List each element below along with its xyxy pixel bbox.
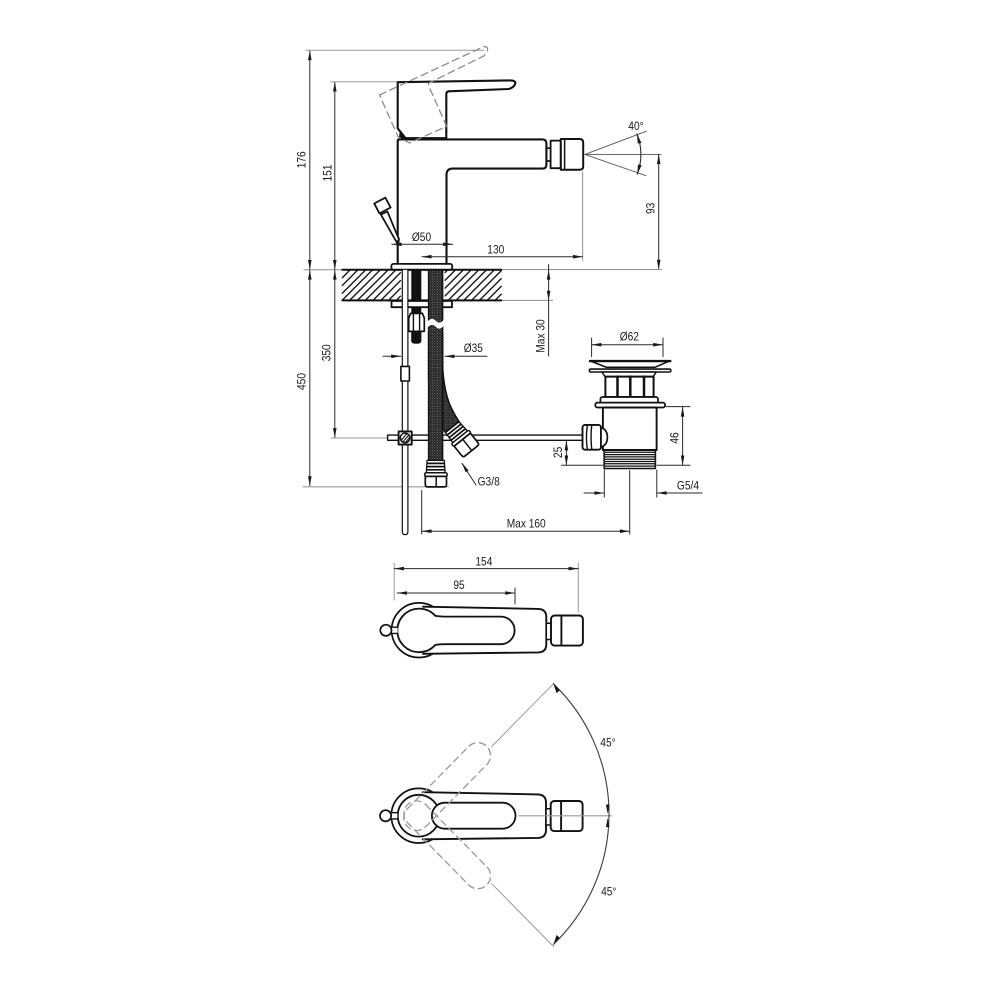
svg-text:25: 25 bbox=[551, 447, 565, 458]
svg-text:45°: 45° bbox=[601, 885, 616, 899]
svg-text:350: 350 bbox=[320, 344, 334, 361]
svg-text:151: 151 bbox=[320, 164, 334, 181]
svg-text:G3/8: G3/8 bbox=[478, 474, 500, 488]
svg-text:154: 154 bbox=[475, 554, 492, 568]
svg-text:G5/4: G5/4 bbox=[677, 479, 699, 493]
svg-text:45°: 45° bbox=[600, 736, 615, 750]
svg-text:Max 30: Max 30 bbox=[533, 319, 547, 352]
svg-text:95: 95 bbox=[453, 578, 464, 592]
svg-text:Ø35: Ø35 bbox=[464, 341, 483, 355]
svg-text:46: 46 bbox=[668, 432, 682, 443]
svg-text:93: 93 bbox=[644, 203, 658, 214]
svg-text:Max 160: Max 160 bbox=[507, 516, 546, 530]
svg-text:40°: 40° bbox=[628, 119, 643, 133]
svg-text:450: 450 bbox=[295, 373, 309, 390]
svg-text:Ø62: Ø62 bbox=[620, 329, 639, 343]
svg-text:130: 130 bbox=[487, 242, 504, 256]
svg-text:Ø50: Ø50 bbox=[412, 230, 431, 244]
svg-text:176: 176 bbox=[295, 151, 309, 168]
